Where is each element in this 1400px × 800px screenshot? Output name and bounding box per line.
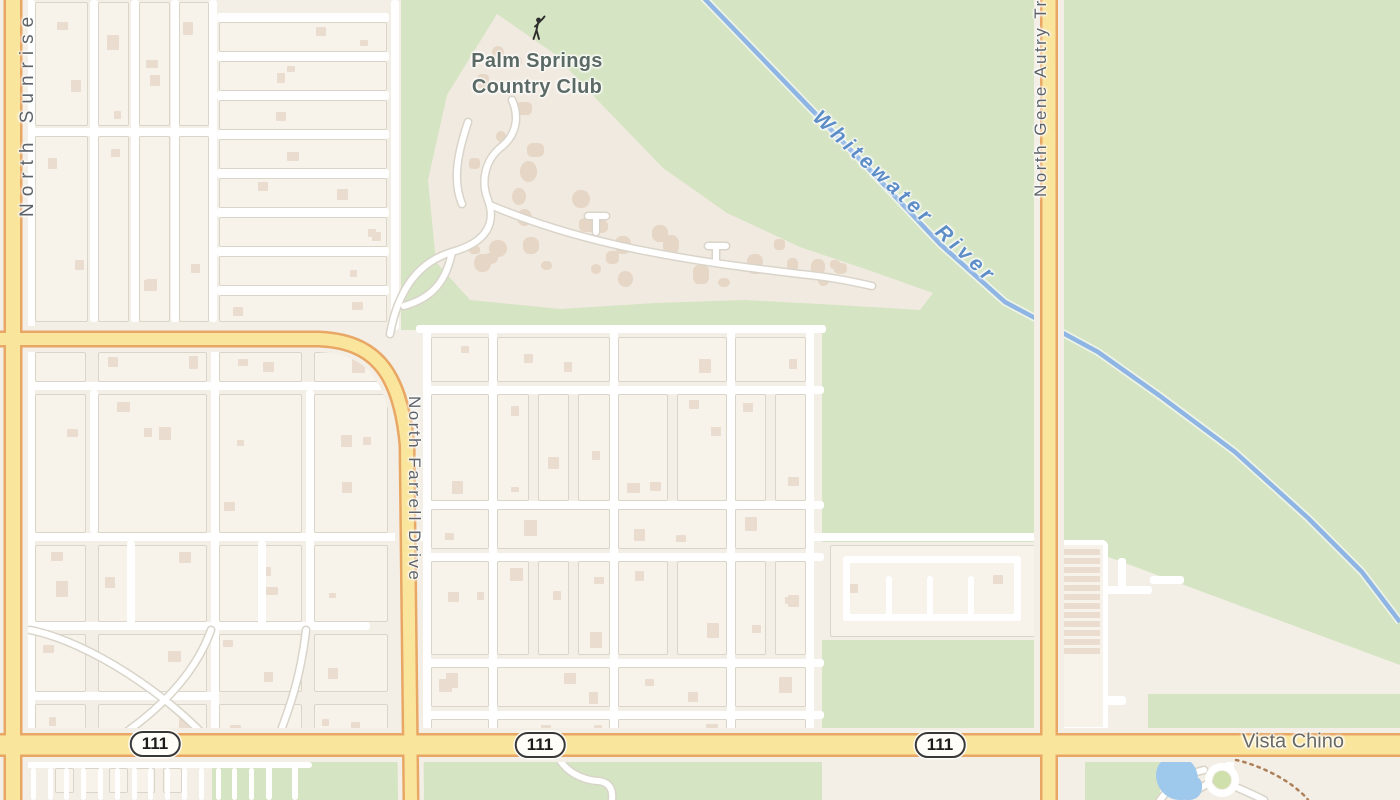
road-label-sunrise: North Sunrise Way: [17, 0, 39, 217]
road-label-gene-autry: North Gene Autry Trail: [1031, 0, 1051, 197]
route-shield-111: 111: [515, 732, 566, 758]
map-canvas[interactable]: North Sunrise Way North Gene Autry Trail…: [0, 0, 1400, 800]
road-label-vista-chino: Vista Chino: [1242, 731, 1344, 754]
trail-dashed: [0, 0, 1400, 800]
road-label-farrell: North Farrell Drive: [404, 396, 424, 582]
country-club-label-line2: Country Club: [471, 74, 602, 100]
country-club-label: Palm Springs Country Club: [471, 48, 602, 100]
route-shield-111: 111: [915, 732, 966, 758]
route-shield-111: 111: [130, 731, 181, 757]
country-club-label-line1: Palm Springs: [471, 48, 602, 74]
golfer-icon: [526, 15, 548, 43]
